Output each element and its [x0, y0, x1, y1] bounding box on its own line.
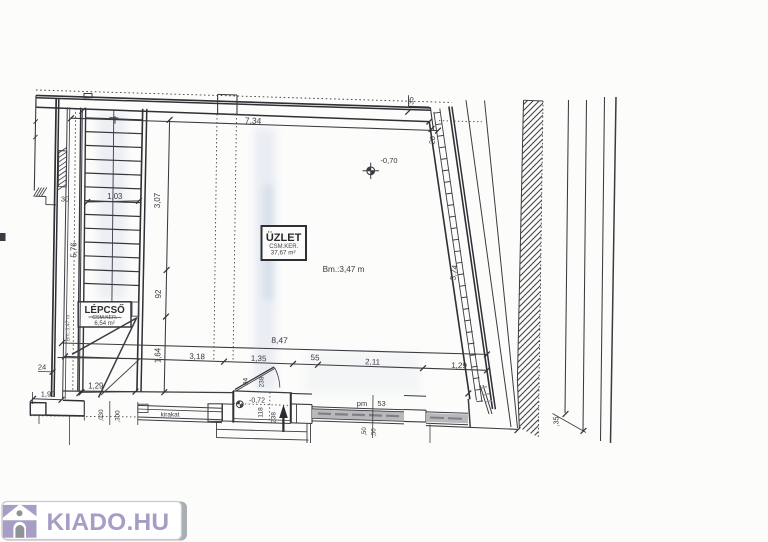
svg-text:55: 55 — [310, 353, 320, 362]
svg-text:,030: ,030 — [98, 409, 105, 422]
svg-text:KIADO.HU: KIADO.HU — [47, 509, 170, 536]
svg-text:238: 238 — [271, 412, 278, 423]
svg-text:53: 53 — [377, 399, 385, 408]
svg-text:238: 238 — [259, 376, 266, 387]
svg-text:8,47: 8,47 — [271, 335, 288, 345]
svg-text:5,76: 5,76 — [70, 242, 79, 257]
svg-text:ÜZLET: ÜZLET — [266, 231, 302, 244]
svg-text:Bm.:3,47 m: Bm.:3,47 m — [323, 265, 365, 274]
svg-text:1,29: 1,29 — [451, 361, 467, 371]
svg-text:CSM.KER.: CSM.KER. — [92, 315, 117, 321]
svg-text:-0,72: -0,72 — [249, 398, 265, 405]
svg-text:1,90: 1,90 — [41, 389, 56, 398]
svg-text:7,34: 7,34 — [245, 115, 262, 126]
svg-text:-0,70: -0,70 — [380, 156, 397, 165]
svg-text:1,03: 1,03 — [107, 192, 122, 201]
svg-text:30: 30 — [61, 195, 69, 204]
svg-text:6,54 m²: 6,54 m² — [94, 321, 114, 327]
svg-text:1,35: 1,35 — [251, 354, 267, 364]
svg-text:3,18: 3,18 — [189, 352, 205, 362]
svg-text:,50: ,50 — [362, 427, 368, 436]
svg-text:1,29: 1,29 — [88, 381, 103, 390]
svg-text:35: 35 — [409, 97, 416, 105]
svg-text:pm: pm — [357, 399, 367, 408]
svg-text:118: 118 — [258, 407, 265, 418]
svg-text:kirakat: kirakat — [161, 412, 180, 419]
svg-text:37,67 m²: 37,67 m² — [271, 249, 296, 256]
svg-text:2,11: 2,11 — [365, 357, 381, 367]
svg-text:92: 92 — [154, 290, 163, 299]
svg-text:,35: ,35 — [554, 417, 561, 427]
svg-text:,50: ,50 — [372, 428, 378, 437]
svg-text:1,64: 1,64 — [153, 347, 162, 363]
svg-text:Bm.:3,47 m: Bm.:3,47 m — [66, 315, 72, 342]
svg-text:3,07: 3,07 — [153, 193, 162, 208]
svg-text:24: 24 — [38, 363, 46, 372]
svg-text:,300: ,300 — [115, 410, 122, 423]
